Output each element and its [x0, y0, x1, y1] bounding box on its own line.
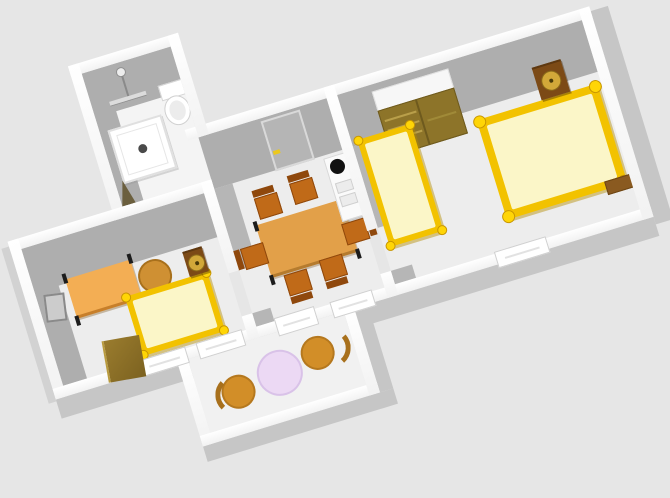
room-balcony [0, 0, 670, 498]
floorplan-3d-view [0, 0, 670, 498]
balcony-chair[interactable] [217, 371, 259, 413]
balcony-chair[interactable] [296, 332, 338, 374]
apartment-plan [0, 0, 670, 498]
